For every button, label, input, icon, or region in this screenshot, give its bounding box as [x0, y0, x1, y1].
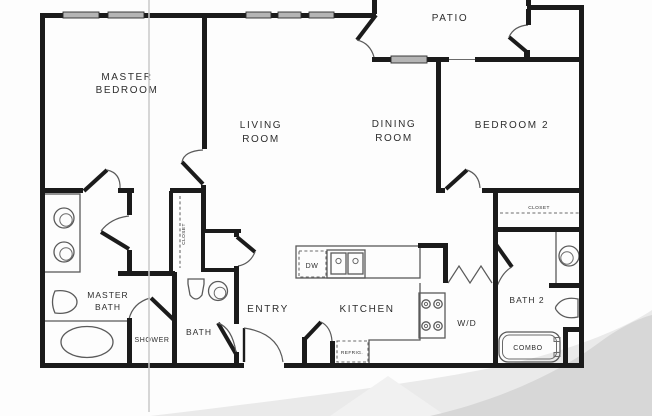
walls [40, 0, 584, 368]
hall-closet-door [237, 237, 255, 266]
dressing-area-door [101, 216, 129, 249]
label-bath: BATH [186, 327, 212, 337]
label-bath-2: BATH 2 [509, 295, 544, 305]
front-entry-door [244, 328, 283, 362]
master-hall-opening-door [182, 150, 203, 184]
label-living-room-2: ROOM [242, 134, 280, 145]
label-master-bath: MASTER [87, 290, 128, 300]
patio-door [357, 15, 376, 57]
fixtures-layer [44, 60, 579, 364]
sink-icon-bath [209, 282, 228, 301]
label-dishwasher: DW [306, 263, 319, 270]
label-living-room: LIVING [240, 120, 282, 131]
bathtub-icon-master [44, 321, 127, 358]
toilet-icon-bath [188, 279, 204, 299]
master-vanity-sinks-icon [44, 194, 80, 272]
patio-storage-door [509, 25, 528, 53]
label-dining-room: DINING [372, 119, 417, 130]
label-patio: PATIO [432, 13, 469, 24]
label-bedroom-2: BEDROOM 2 [475, 120, 549, 131]
label-dining-room-2: ROOM [375, 133, 413, 144]
label-shower: SHOWER [134, 337, 169, 344]
label-master-closet: CLOSET [181, 223, 187, 245]
range-icon [419, 293, 445, 338]
window [63, 12, 99, 18]
window [278, 12, 301, 18]
window [391, 56, 427, 63]
label-combo-tub: COMBO [513, 345, 542, 352]
sink-icon-bath2 [556, 232, 579, 283]
label-washer-dryer: W/D [457, 318, 477, 328]
bifold-doors-icon [448, 266, 492, 283]
label-master-bedroom: MASTER [101, 72, 152, 83]
window [108, 12, 144, 18]
bedroom2-door [446, 170, 480, 189]
window [246, 12, 271, 18]
kitchen-counter [296, 246, 420, 278]
label-refrigerator: REFRIG. [341, 350, 363, 356]
toilet-icon-bath2 [556, 298, 579, 318]
bath-door [218, 323, 236, 354]
label-kitchen: KITCHEN [339, 304, 394, 315]
toilet-icon-master-bath [53, 291, 78, 314]
label-master-bath-2: BATH [95, 302, 121, 312]
label-bedroom2-closet: CLOSET [528, 205, 550, 211]
shower-door [129, 298, 175, 321]
entry-closet-door [304, 322, 332, 341]
master-bedroom-door [84, 170, 120, 191]
window [309, 12, 334, 18]
floor-plan-drawing: MASTER BEDROOM LIVING ROOM DINING ROOM B… [0, 0, 652, 416]
doors-layer [84, 15, 528, 362]
label-entry: ENTRY [247, 304, 289, 315]
floor-plan: MASTER BEDROOM LIVING ROOM DINING ROOM B… [0, 0, 652, 416]
kitchen-counter-edge [369, 283, 420, 363]
